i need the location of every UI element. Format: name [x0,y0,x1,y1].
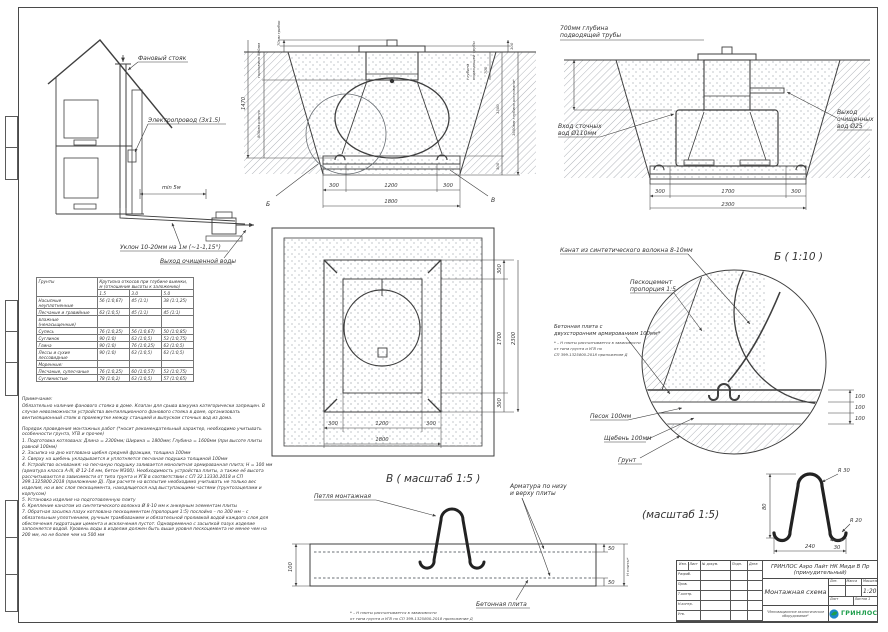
lit-header: Лит. [829,579,846,586]
table-depth-3: 5.0 [161,290,193,297]
row-razrab: Разраб. [677,571,701,581]
dim-bot-50: 50 [608,580,615,586]
col-sign: Подп. [731,561,748,571]
dim-total-height: 1470 [241,96,247,110]
detail-v-title: В ( масштаб 1:5 ) [386,473,480,485]
title-block-revision-grid: Изм.Лист № докум. Подп. Дата Разраб. Про… [677,561,763,621]
dim-r300b: 300 [497,397,503,408]
dim-100a: 100 [855,394,866,400]
house-connection-view: Фановый стояк Электропровод (3x1.5) min … [20,22,265,264]
dim-b300b: 300 [443,183,454,189]
notes-item: 6. Крепление канатом из синтетического в… [22,504,274,510]
table-row: Песчаные, супесчаные76 (1:0,25)60 (1:0,5… [37,368,194,375]
col-date: Дата [748,561,763,571]
globe-leaf-icon [829,609,839,619]
outlet-label-2: очищенных [837,116,874,123]
dim-300a: 300 [655,189,666,195]
dim-p300a: 300 [328,421,339,427]
gravel-label: Щебень 100мм [604,435,652,442]
rebar-rows [314,552,592,578]
table-row: Лессы и сухие лессовидные90 (1:0)63 (1:0… [37,349,194,361]
drawing-sheet: Фановый стояк Электропровод (3x1.5) min … [0,0,888,632]
dim-p1800: 1800 [375,437,389,443]
table-row: Глина90 (1:0)76 (1:0,25)63 (1:0,5) [37,342,194,349]
house-outline [48,40,172,214]
callout-v-label: В [491,197,495,204]
slab-label-2: двухсторонним армированием 100мм* [553,331,661,337]
detail-b-title: Б ( 1:10 ) [774,251,823,263]
sheet-count: Листов 1 [854,597,878,605]
detail-v-view: В ( масштаб 1:5 ) Петля монтажная Армату… [258,466,638,622]
dim-100b: 100 [855,405,866,411]
footnote-2: от типа грунта и УГВ по СП 399.1325800.2… [350,616,473,621]
pit-side-view: Б В 70мм грибок горловина 600мм 800мм ко… [238,18,544,230]
radius-20-label: R 20 [850,518,863,524]
table-row: Песчаные и гравийные63 (1:0,5)45 (1:1)45… [37,309,194,316]
footnote-1: * – Н плиты рассчитывается в зависимости [350,610,437,615]
soil-label: Грунт [618,457,637,464]
dim-100: 100 [509,42,514,50]
table-row: Суглинистые78 (1:0,2)63 (1:0,5)57 (1:0,6… [37,375,194,382]
rope-label: Канат из синтетического волокна 8-10мм [560,247,693,254]
title-block: Изм.Лист № докум. Подп. Дата Разраб. Про… [676,560,878,622]
loop-label: Петля монтажная [314,493,371,500]
table-header-soil: Грунты [37,278,98,297]
sheet-name: Монтажная схема [763,579,829,605]
dim-700: 700 [483,66,488,74]
row-utv: Утв. [677,611,701,621]
vent-stack-pipe [74,55,131,209]
mass-header: Масса [846,579,863,586]
pit-front-view: 700мм глубина подводящей трубы Вход сточ… [554,18,878,230]
mounting-loop-shape [774,474,846,541]
rebar-label-1: Арматура по низу [509,483,567,490]
notes-paragraph-2: Порядок проведения монтажных работ (*нос… [22,427,274,439]
dim-pit-depth: 1600мм глубина котлована* [511,79,516,136]
sandcement-label-2: пропорция 1:5 [630,286,676,293]
col-izm: Изм. [678,562,689,570]
dim-100: 100 [288,561,294,572]
table-row: Насыпные неуплотненные56 (1:0,67)45 (1:1… [37,297,194,309]
company-logo: ГРИНЛОС [829,606,877,621]
dim-cap: 70мм грибок [276,20,281,46]
col-doc: № докум. [701,561,731,571]
row-nkontr: Н.контр. [677,601,701,611]
pipe-depth-label-1: 700мм глубина [560,25,608,32]
callout-b-label: Б [266,201,270,208]
slope-steepness-table: Грунты Крутизна откосов при глубине выем… [36,277,194,382]
dim-30: 30 [834,545,841,551]
scale-grid: Лит. Масса Масштаб 1:20 Лист Листов 1 [829,579,877,605]
slab-footnote-1: * – Н плиты рассчитывается в зависимости [554,340,641,345]
frame-margin-cells-top [5,116,18,180]
dim-b1800: 1800 [384,199,398,205]
table-row: влажные (ненасыщенные) [37,316,194,328]
dim-p1200: 1200 [375,421,389,427]
slab-label: Бетонная плита [476,601,527,608]
table-header-main: Крутизна откосов при глубине выемки, м (… [97,278,193,290]
dim-b1200: 1200 [384,183,398,189]
table-row: Супесь76 (1:0,25)56 (1:0,67)50 (1:0,85) [37,328,194,335]
label-min-distance: min 5м [162,185,181,191]
notes-paragraph-1: Обязательно наличие фанового стояка в до… [22,404,274,422]
table-row: Моренные: [37,361,194,368]
dim-1700: 1700 [721,189,735,195]
notes-item: 4. Устройство основания: на песчаную под… [22,463,274,498]
company-tagline: "Инновационное экологическое оборудовани… [763,606,829,621]
frame-margin-cells-mid [5,300,18,396]
loop-scale-label: (масштаб 1:5) [642,509,719,521]
dim-h-slab: Н плиты* [625,557,630,576]
slab-label-1: Бетонная плита с [554,324,603,330]
label-slope: Уклон 10-20мм на 1м (~1-1,15°) [120,244,221,251]
document-title: ГРИНЛОС Аэро Лайт НК Миди В Пр (принудит… [763,561,877,579]
scale-header: Масштаб [862,579,878,586]
slab-footnote-3: СП 399.1325800.2018 приложение Д [554,352,628,357]
dim-r1700: 1700 [497,331,503,345]
outlet-label-3: вод Ø25 [837,123,863,130]
col-list: Лист [689,562,700,570]
label-electric: Электропровод (3x1.5) [147,117,221,124]
frame-margin-cells-bottom [5,500,18,612]
sand-label: Песок 100мм [590,413,632,420]
mounting-loop [420,509,484,568]
dim-neck: горловина 600мм [256,43,261,78]
dim-240: 240 [805,544,816,550]
slab-footnote-2: от типа грунта и УГВ по [554,346,603,351]
installation-notes: Примечание: Обязательно наличие фанового… [22,397,274,539]
plan-view: 300 1700 300 2300 300 1200 300 1800 [262,224,562,476]
gravel-layer [640,413,828,424]
detail-b-view: Б ( 1:10 ) Канат из синтетического волок… [552,228,878,468]
dim-b300a: 300 [329,183,340,189]
notes-item: 7. Обратная засыпка пазух котлована песк… [22,510,274,539]
dim-1300: 1300 [495,104,500,114]
inlet-label-2: вод Ø110мм [558,130,597,137]
dim-2300: 2300 [721,202,735,208]
radius-30-label: R 30 [838,468,851,474]
table-depth-1: 1.5 [97,290,129,297]
notes-title: Примечание: [22,397,274,403]
pipe-depth-label-1: глубина [465,63,470,80]
dim-r2300: 2300 [511,331,517,345]
dim-300b: 300 [791,189,802,195]
row-prov: Пров. [677,581,701,591]
row-tkontr: Т.контр. [677,591,701,601]
logo-wordmark: ГРИНЛОС [841,610,877,617]
dim-top-50: 50 [608,546,615,552]
pipe-depth-label-2: подводящей трубы [560,32,621,39]
sandcement-label-1: Пескоцемент [630,279,673,286]
dim-300: 300 [495,162,500,170]
dim-100c: 100 [855,416,866,422]
sheet-number: Лист [829,597,854,605]
dim-body: 800мм корпус [256,109,261,138]
backfill-sandcement [616,60,840,178]
dim-p300b: 300 [426,421,437,427]
rebar-label-2: и верху плиты [510,490,556,497]
scale-value: 1:20 [862,586,878,597]
pipe-depth-label-2: подводящей трубы [471,41,476,80]
concrete-slab [310,544,596,586]
table-depth-2: 3.0 [129,290,161,297]
dim-r300a: 300 [497,263,503,274]
dim-80: 80 [762,503,768,510]
inlet-label-1: Вход сточных [558,123,602,130]
outlet-label-1: Выход [837,109,857,116]
table-row: Суглинок90 (1:0)63 (1:0,5)53 (1:0,75) [37,335,194,342]
label-vent-stack: Фановый стояк [138,55,187,62]
notes-item: 1. Подготовка котлована: Длина = 2300мм;… [22,439,274,451]
loop-detail-view: (масштаб 1:5) 80 240 30 R 30 R 20 [638,452,878,562]
